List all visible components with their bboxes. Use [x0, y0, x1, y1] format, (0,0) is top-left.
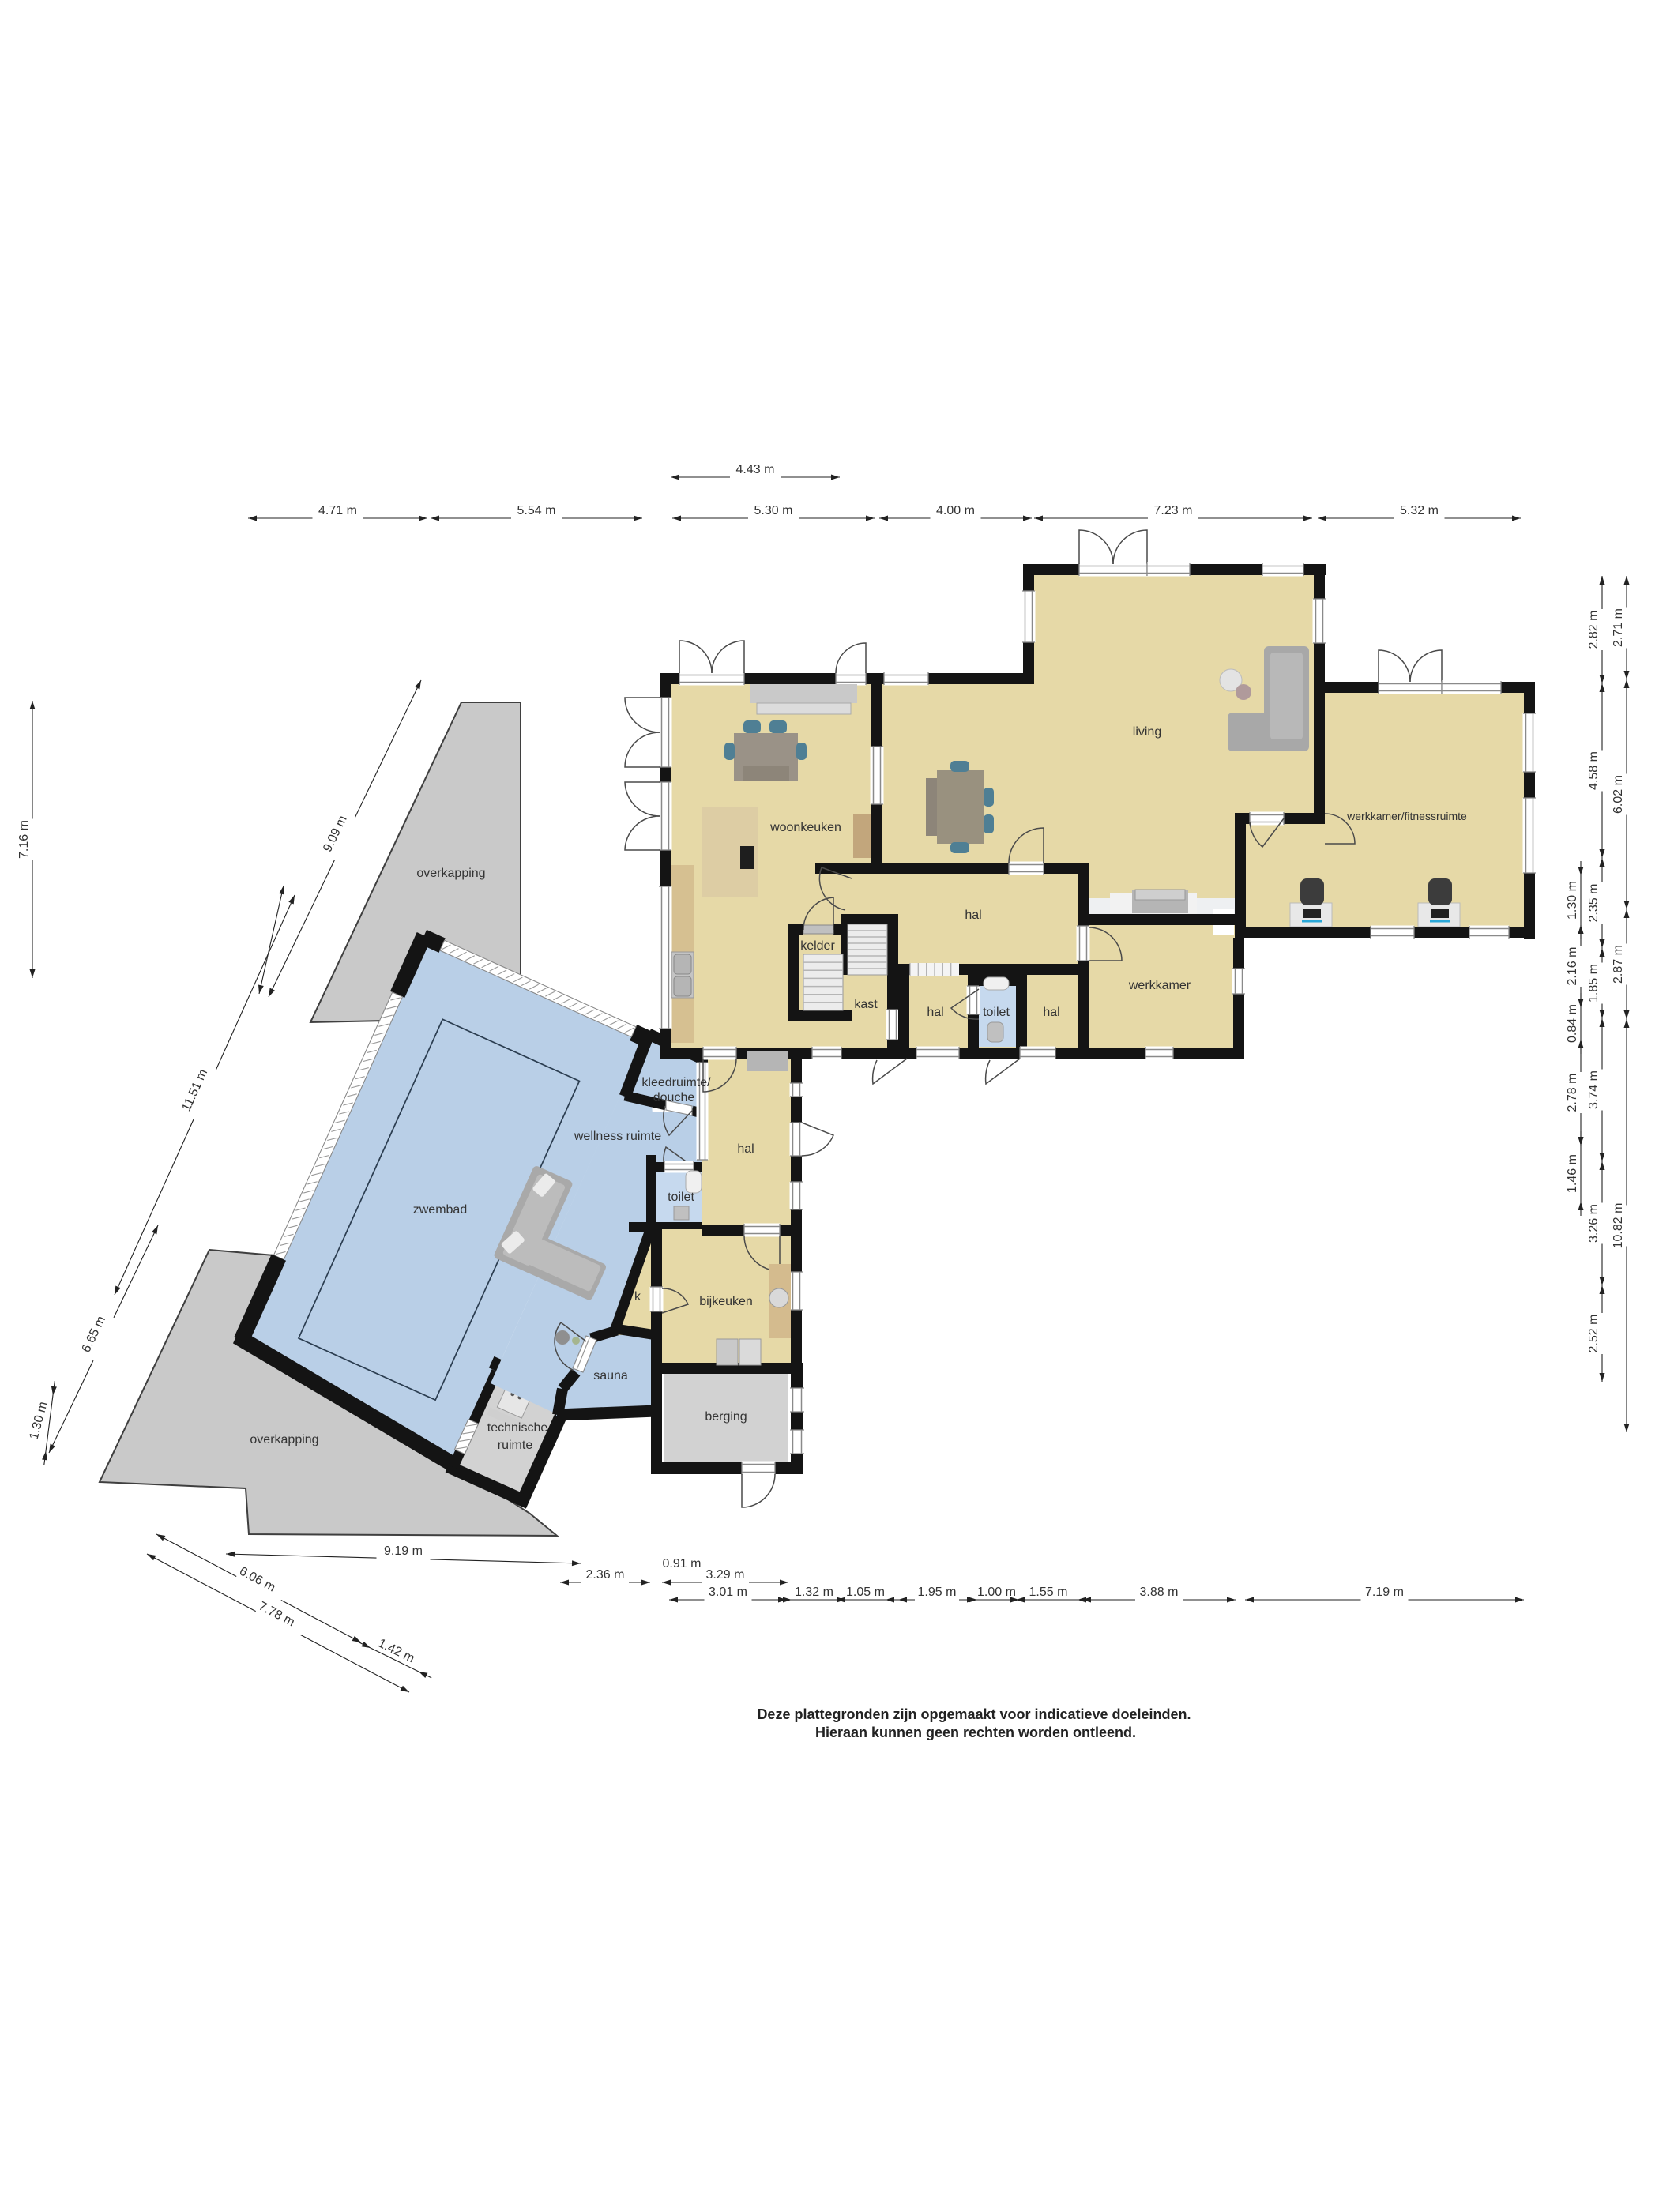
svg-text:k: k [634, 1290, 641, 1303]
svg-text:ruimte: ruimte [498, 1439, 533, 1452]
svg-text:4.43 m: 4.43 m [736, 463, 775, 476]
svg-text:4.58 m: 4.58 m [1587, 751, 1601, 790]
svg-text:3.29 m: 3.29 m [706, 1568, 745, 1582]
svg-text:kelder: kelder [800, 939, 835, 953]
svg-text:1.85 m: 1.85 m [1587, 964, 1601, 1003]
svg-text:0.84 m: 0.84 m [1566, 1004, 1579, 1043]
svg-text:3.88 m: 3.88 m [1140, 1586, 1179, 1599]
svg-text:5.30 m: 5.30 m [754, 504, 793, 517]
svg-text:3.01 m: 3.01 m [709, 1586, 747, 1599]
svg-text:5.32 m: 5.32 m [1400, 504, 1439, 517]
svg-text:0.91 m: 0.91 m [663, 1557, 702, 1571]
svg-text:woonkeuken: woonkeuken [769, 821, 841, 834]
svg-text:7.23 m: 7.23 m [1154, 504, 1193, 517]
svg-text:hal: hal [927, 1006, 943, 1019]
svg-text:4.71 m: 4.71 m [318, 504, 357, 517]
svg-text:overkapping: overkapping [250, 1433, 318, 1446]
svg-text:1.95 m: 1.95 m [918, 1586, 957, 1599]
svg-text:9.19 m: 9.19 m [384, 1544, 423, 1558]
svg-text:7.16 m: 7.16 m [17, 820, 31, 859]
svg-text:3.74 m: 3.74 m [1587, 1070, 1601, 1109]
svg-text:10.82 m: 10.82 m [1612, 1203, 1625, 1249]
svg-text:kast: kast [854, 998, 878, 1011]
svg-text:2.52 m: 2.52 m [1587, 1315, 1601, 1353]
svg-text:1.46 m: 1.46 m [1566, 1154, 1579, 1193]
svg-text:hal: hal [737, 1142, 754, 1156]
svg-text:2.36 m: 2.36 m [586, 1568, 625, 1582]
svg-text:3.26 m: 3.26 m [1587, 1204, 1601, 1243]
svg-text:wellness ruimte: wellness ruimte [574, 1130, 661, 1143]
svg-text:2.35 m: 2.35 m [1587, 884, 1601, 923]
svg-text:hal: hal [1043, 1006, 1059, 1019]
svg-text:Hieraan kunnen geen rechten wo: Hieraan kunnen geen rechten worden ontle… [815, 1725, 1136, 1740]
svg-text:1.55 m: 1.55 m [1029, 1586, 1068, 1599]
svg-text:6.02 m: 6.02 m [1612, 775, 1625, 814]
svg-text:zwembad: zwembad [413, 1203, 467, 1217]
svg-text:toilet: toilet [668, 1191, 694, 1204]
svg-text:2.71 m: 2.71 m [1612, 608, 1625, 647]
svg-text:toilet: toilet [983, 1006, 1010, 1019]
svg-text:werkkamer/fitnessruimte: werkkamer/fitnessruimte [1346, 810, 1467, 822]
svg-text:1.00 m: 1.00 m [977, 1586, 1016, 1599]
svg-text:douche: douche [653, 1091, 695, 1104]
svg-text:Deze plattegronden zijn opgema: Deze plattegronden zijn opgemaakt voor i… [757, 1706, 1191, 1722]
svg-text:sauna: sauna [593, 1369, 628, 1382]
svg-text:7.19 m: 7.19 m [1365, 1586, 1404, 1599]
svg-text:werkkamer: werkkamer [1128, 979, 1191, 992]
svg-text:2.82 m: 2.82 m [1587, 611, 1601, 649]
svg-text:2.87 m: 2.87 m [1612, 945, 1625, 984]
svg-text:bijkeuken: bijkeuken [699, 1295, 753, 1308]
svg-text:1.30 m: 1.30 m [1566, 881, 1579, 920]
svg-text:5.54 m: 5.54 m [517, 504, 556, 517]
svg-text:berging: berging [705, 1410, 747, 1424]
svg-text:2.16 m: 2.16 m [1566, 947, 1579, 986]
svg-text:1.32 m: 1.32 m [795, 1586, 833, 1599]
svg-text:2.78 m: 2.78 m [1566, 1074, 1579, 1112]
svg-text:overkapping: overkapping [416, 867, 485, 880]
svg-text:kleedruimte/: kleedruimte/ [641, 1076, 711, 1089]
svg-text:1.05 m: 1.05 m [846, 1586, 885, 1599]
svg-text:living: living [1133, 725, 1161, 739]
svg-text:hal: hal [965, 908, 981, 922]
svg-text:technische: technische [487, 1421, 548, 1435]
svg-text:4.00 m: 4.00 m [936, 504, 975, 517]
